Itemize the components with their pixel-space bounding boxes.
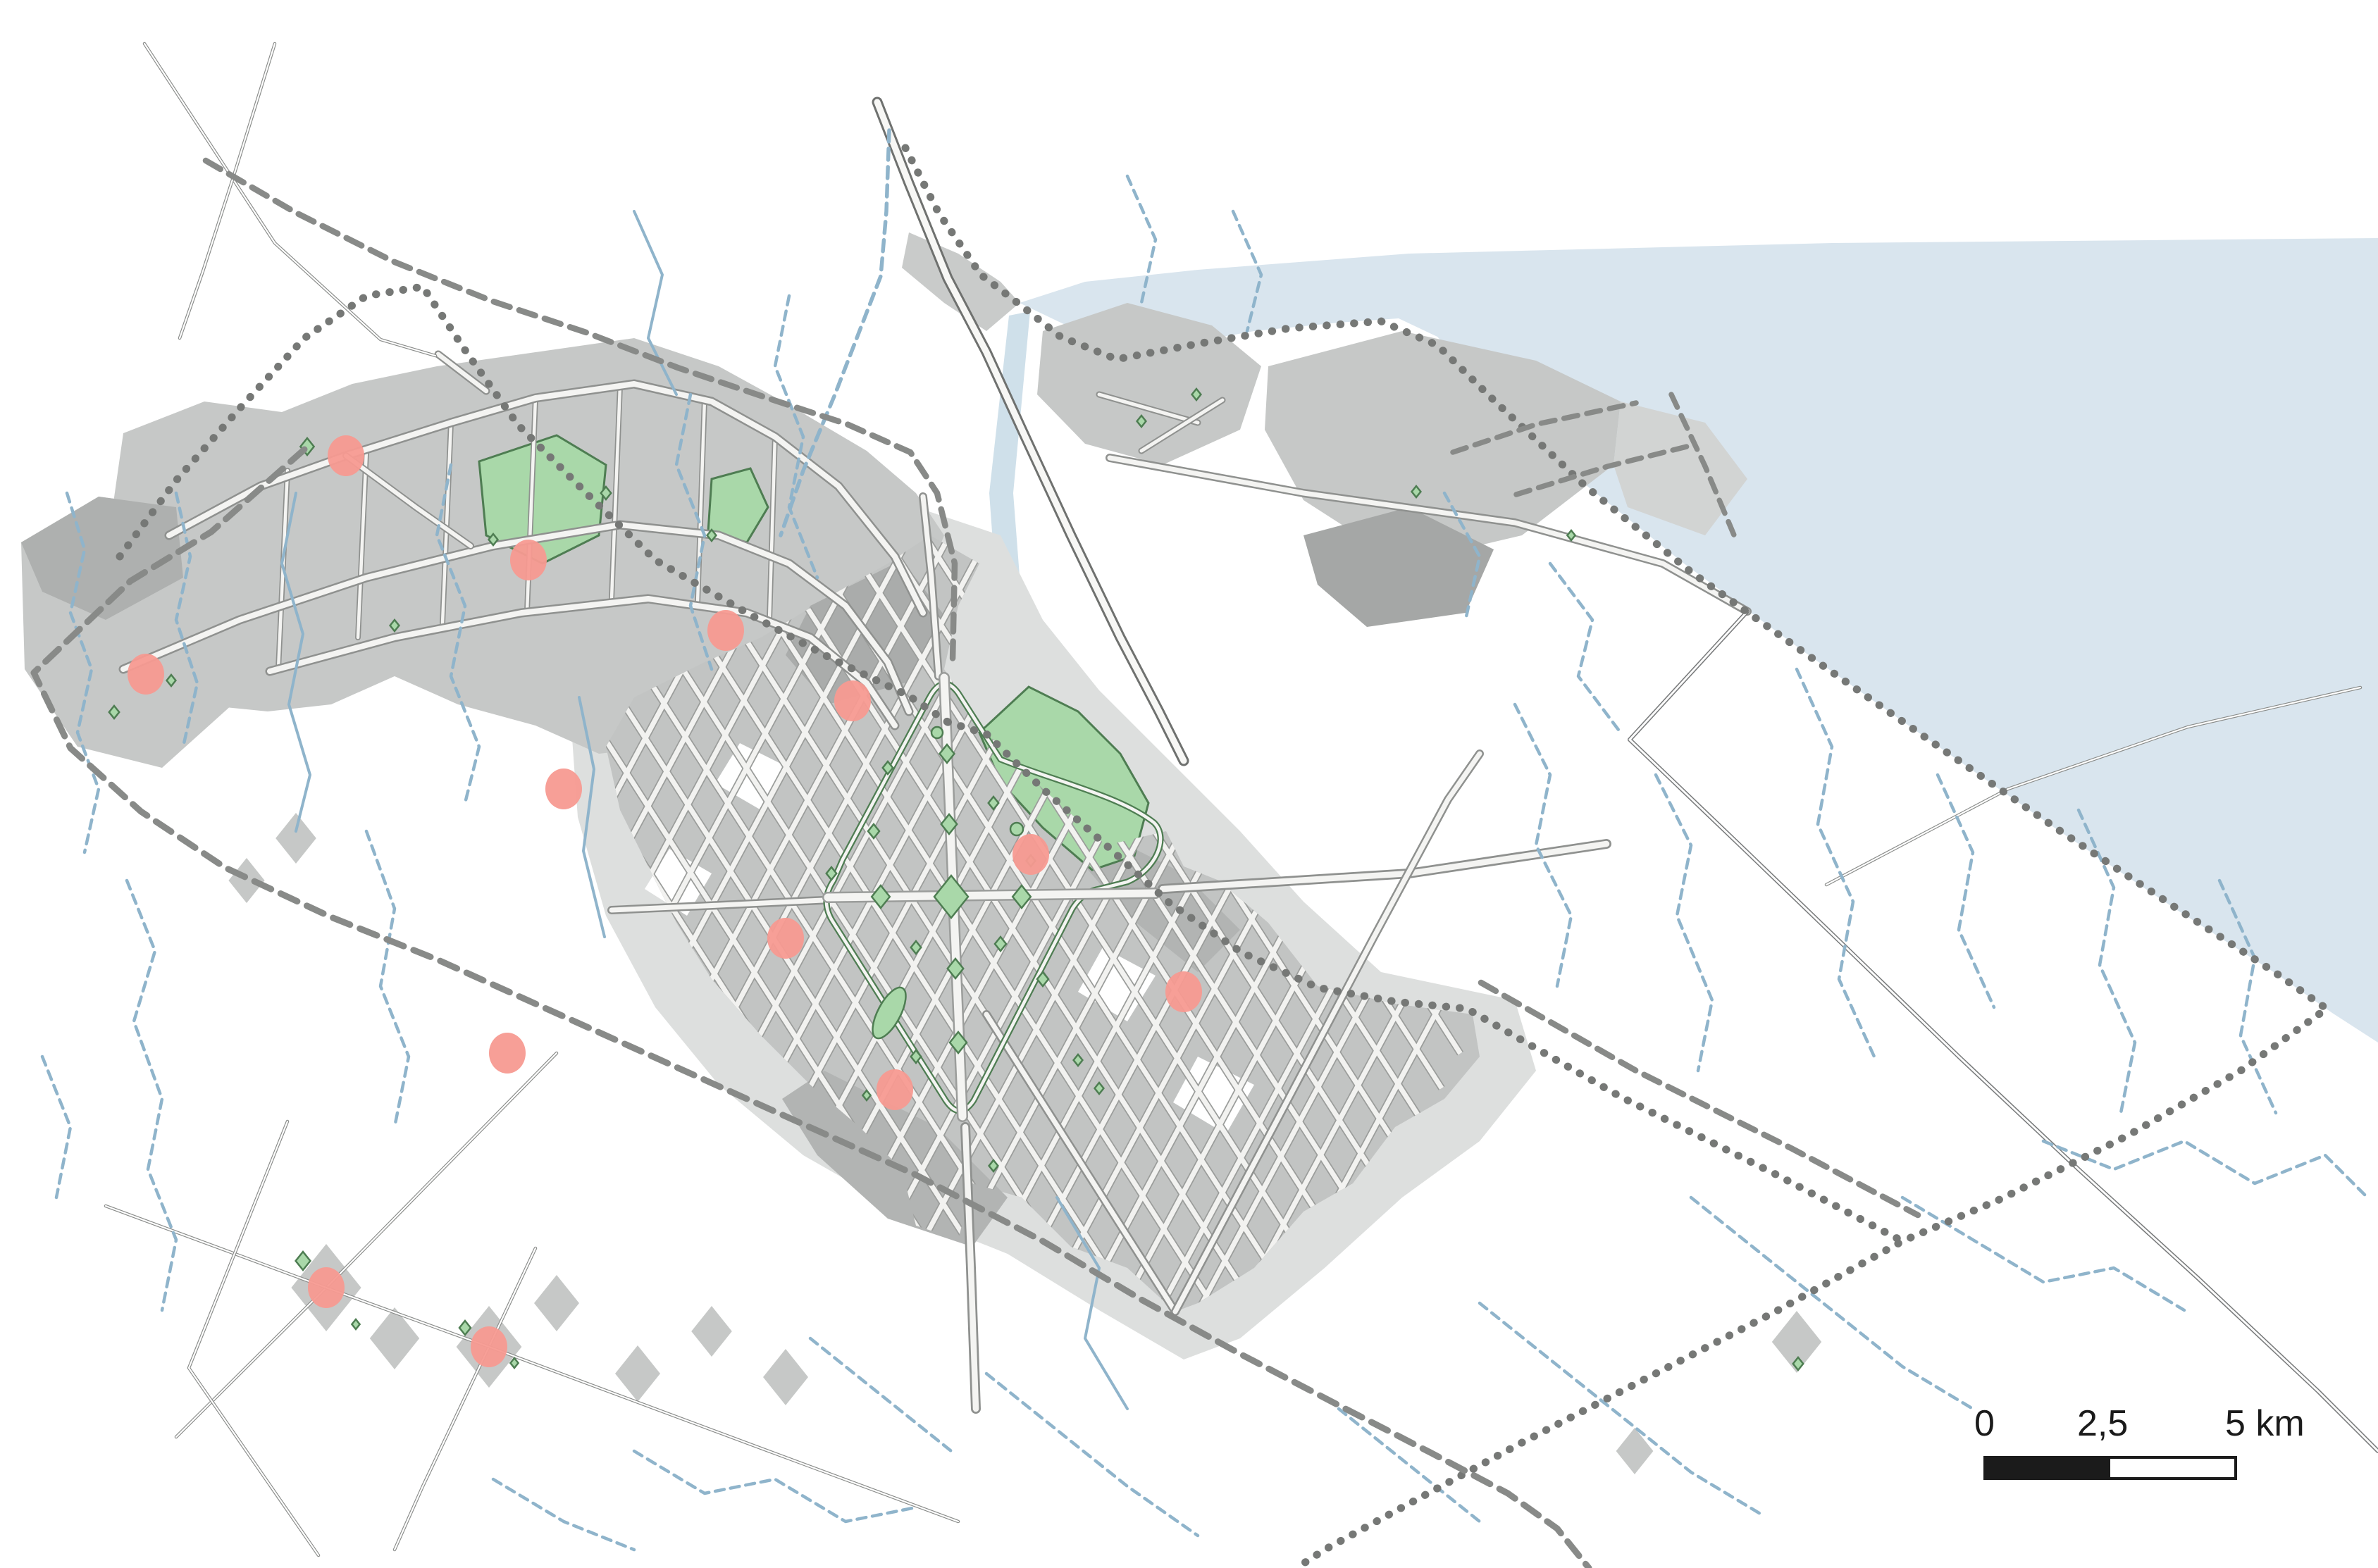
stream [986,1374,1198,1536]
poi-marker[interactable] [877,1069,913,1110]
map-canvas[interactable]: 0 2,5 5 km [0,0,2378,1568]
poi-marker[interactable] [767,918,804,959]
rural-sw-4 [189,1121,318,1555]
stream [634,1451,916,1522]
stream [1902,1197,2184,1310]
rural-sw-2 [395,1248,535,1550]
poi-marker[interactable] [545,769,582,809]
stream [366,831,409,1127]
poi-marker[interactable] [834,680,871,721]
poi-marker[interactable] [128,654,164,695]
scale-bar: 0 2,5 5 km [1952,1405,2346,1518]
poi-marker[interactable] [308,1267,345,1308]
poi-marker[interactable] [471,1326,507,1367]
poi-marker[interactable] [489,1033,526,1074]
boundary-dashed-pair [1481,983,1918,1215]
stream [1480,1303,1761,1514]
stream [1656,775,1712,1071]
stream [493,1479,634,1550]
stream [1550,564,1621,733]
stream [810,1338,951,1451]
city-map-svg [0,0,2378,1568]
rural-nw-1 [144,44,435,356]
stream [127,881,176,1310]
stream [1691,1197,1973,1409]
poi-marker[interactable] [510,540,547,580]
scale-label-mid: 2,5 [2077,1405,2128,1442]
scale-bar-filled-half [1986,1459,2110,1477]
stream [42,1057,70,1197]
scale-label-start: 0 [1974,1405,1995,1442]
poi-marker[interactable] [1012,834,1049,875]
stream [1515,704,1571,986]
poi-marker[interactable] [1165,971,1202,1012]
scale-bar-graphic [1983,1456,2237,1480]
poi-marker[interactable] [707,610,744,651]
stream [1797,669,1874,1057]
scale-label-end: 5 km [2225,1405,2305,1442]
rural-sw-1 [176,1053,557,1437]
stream [2043,1141,2367,1197]
poi-marker[interactable] [328,435,364,476]
